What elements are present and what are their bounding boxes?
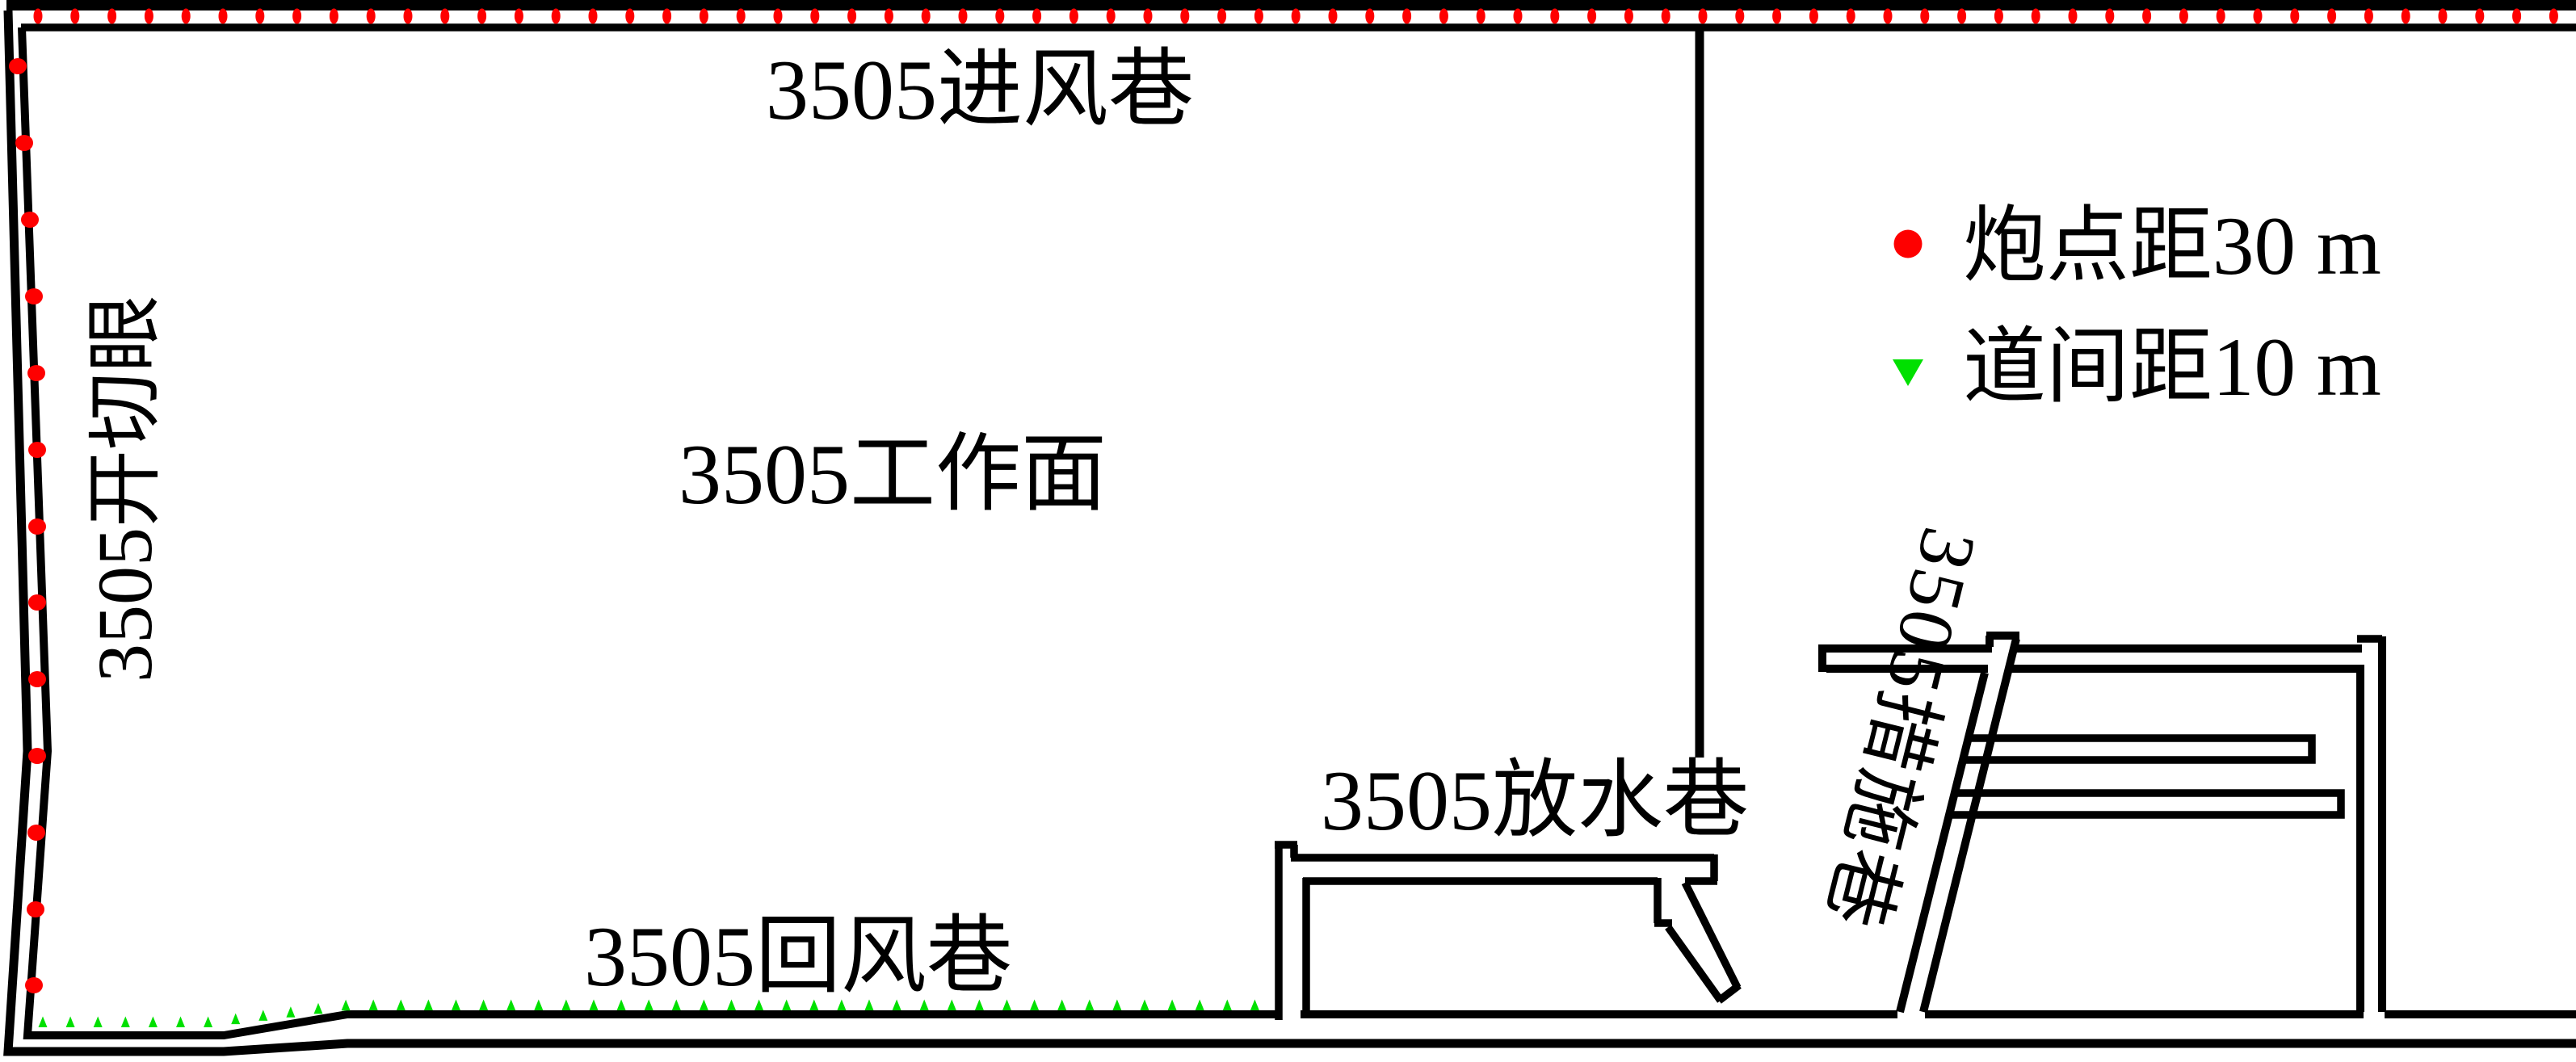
legend-row-trace-interval: 道间距10 m bbox=[1874, 307, 2381, 428]
legend: 炮点距30 m 道间距10 m bbox=[1874, 186, 2381, 428]
cut-inner-and-return-top-line bbox=[22, 27, 1276, 1035]
drain-roadway-outline bbox=[1275, 842, 1739, 1020]
top-shot-point-markers bbox=[34, 9, 2558, 24]
legend-trace-label: 道间距10 m bbox=[1963, 326, 2381, 409]
legend-shot-point-label: 炮点距30 m bbox=[1963, 205, 2381, 288]
outer-boundary-line bbox=[8, 10, 2576, 1052]
label-drain-roadway: 3505放水巷 bbox=[1321, 758, 1749, 844]
stub-roadways-outline bbox=[1949, 738, 2341, 815]
roadway-linework bbox=[0, 0, 2576, 1062]
label-intake-airway: 3505进风巷 bbox=[766, 48, 1194, 133]
label-working-face: 3505工作面 bbox=[679, 432, 1107, 518]
legend-row-shot-point: 炮点距30 m bbox=[1874, 186, 2381, 307]
mine-layout-diagram: 3505进风巷 3505开切眼 3505工作面 3505放水巷 3505回风巷 … bbox=[0, 0, 2576, 1062]
label-return-airway: 3505回风巷 bbox=[584, 914, 1012, 1000]
label-open-off-cut: 3505开切眼 bbox=[86, 295, 164, 682]
